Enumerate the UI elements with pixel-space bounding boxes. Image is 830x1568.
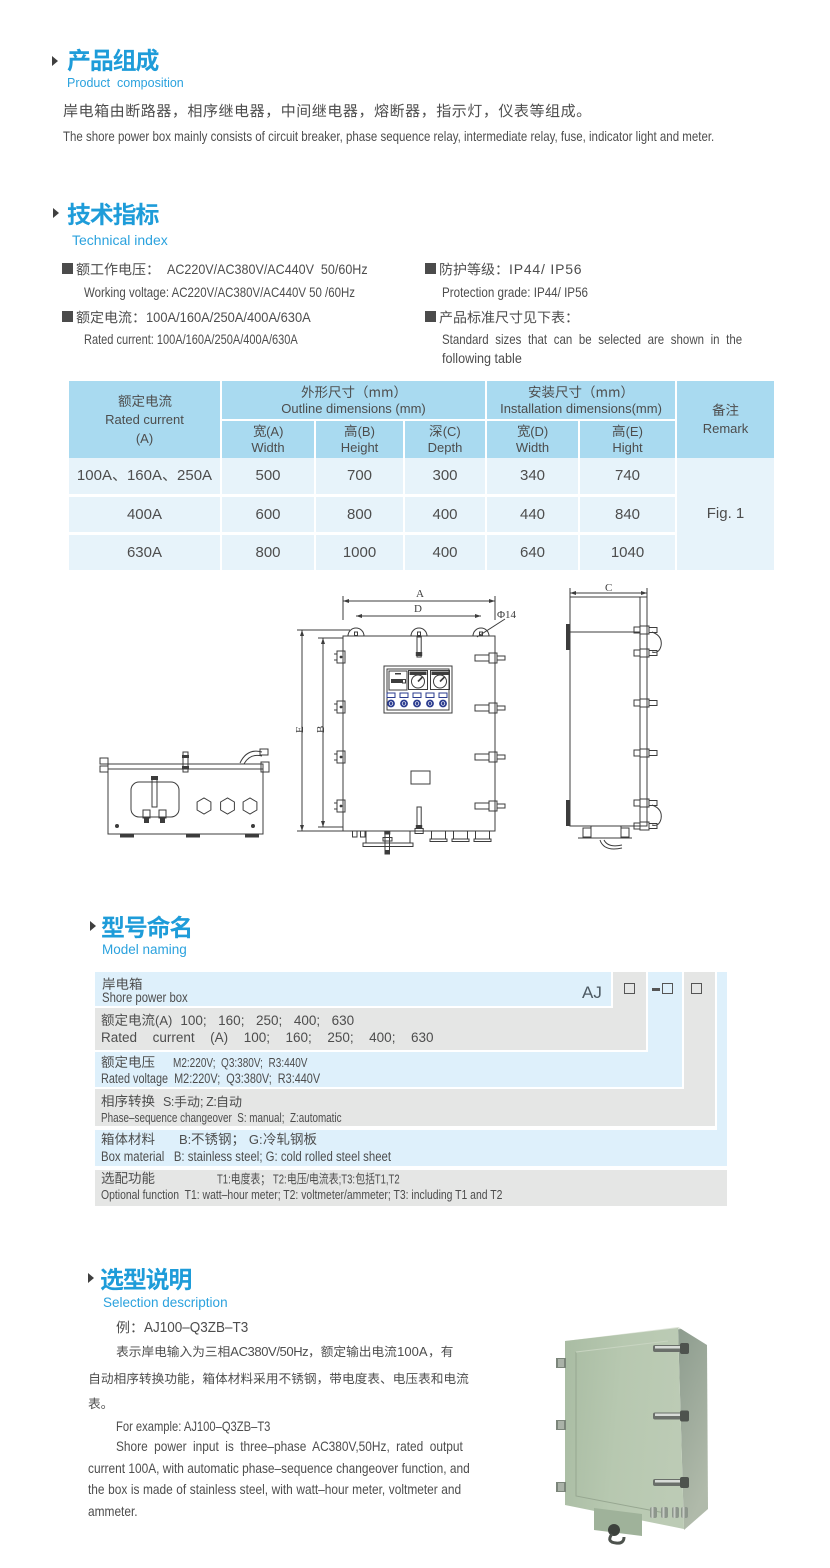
svg-text:Φ14: Φ14 xyxy=(497,609,517,621)
svg-text:C: C xyxy=(605,583,612,594)
svg-text:E: E xyxy=(294,726,306,733)
svg-text:D: D xyxy=(414,603,422,615)
svg-text:A: A xyxy=(416,588,424,600)
svg-text:B: B xyxy=(315,726,327,733)
